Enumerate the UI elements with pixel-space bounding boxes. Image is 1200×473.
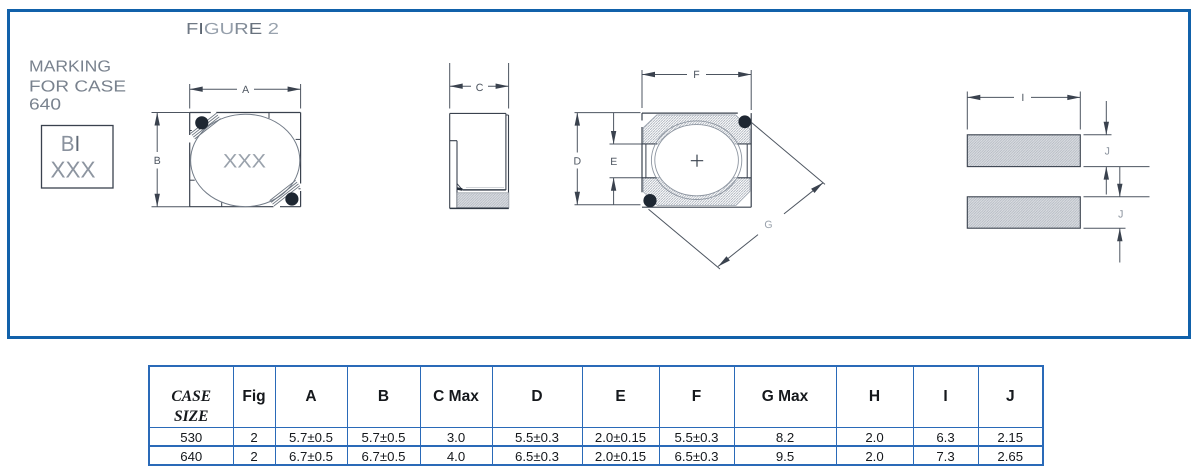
- svg-text:E: E: [610, 156, 617, 168]
- svg-text:FOR CASE: FOR CASE: [29, 79, 126, 96]
- svg-text:I: I: [1021, 92, 1024, 104]
- svg-text:J: J: [1118, 209, 1123, 221]
- svg-text:XXX: XXX: [51, 157, 96, 183]
- svg-text:BI: BI: [61, 131, 81, 156]
- svg-text:XXX: XXX: [223, 151, 266, 173]
- svg-text:F: F: [693, 69, 699, 81]
- svg-text:FIGURE 2: FIGURE 2: [186, 21, 279, 38]
- svg-text:D: D: [574, 155, 582, 167]
- svg-text:J: J: [1105, 146, 1110, 158]
- svg-text:A: A: [242, 84, 249, 96]
- svg-text:C: C: [476, 82, 484, 94]
- svg-text:640: 640: [29, 97, 61, 114]
- svg-text:B: B: [154, 155, 161, 167]
- svg-text:G: G: [764, 219, 772, 231]
- svg-text:MARKING: MARKING: [29, 59, 111, 76]
